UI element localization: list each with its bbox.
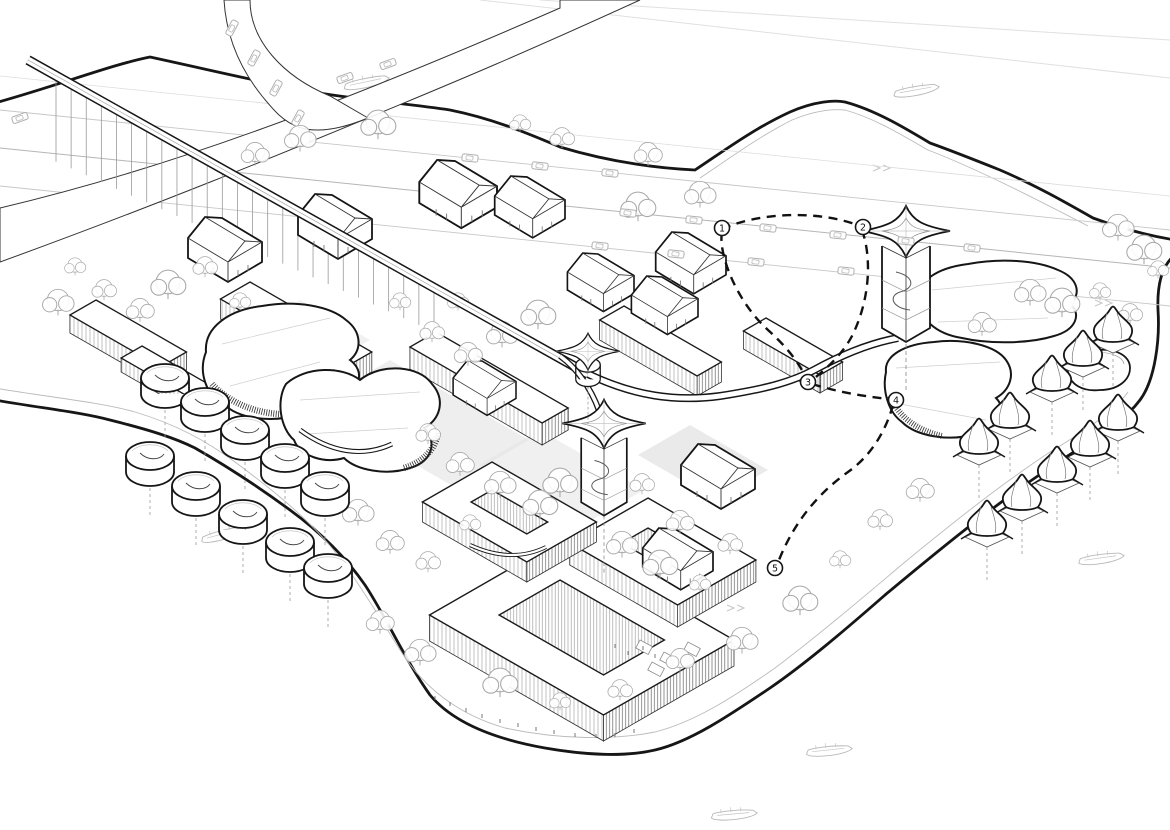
tree-icon — [65, 258, 86, 276]
tree-icon — [634, 142, 662, 165]
tree-icon — [1103, 214, 1135, 240]
tree-icon — [390, 293, 411, 311]
route-marker: 4 — [889, 393, 904, 408]
tree-icon — [630, 474, 655, 494]
tree-icon — [43, 289, 75, 315]
car-icon — [838, 267, 855, 276]
boat-icon — [1078, 548, 1125, 567]
car-icon — [11, 112, 28, 124]
route-marker-number: 4 — [893, 395, 899, 406]
tree-icon — [550, 128, 575, 148]
car-icon — [748, 258, 765, 267]
gabled-house — [567, 253, 634, 312]
boat-icon — [806, 741, 853, 758]
north-shoreline — [0, 57, 1170, 240]
boat-icon — [892, 79, 939, 99]
gabled-house — [495, 176, 565, 238]
car-icon — [532, 162, 549, 171]
drum-pavilion — [126, 442, 174, 518]
tree-icon — [405, 639, 437, 665]
water-current-icon — [727, 605, 744, 611]
drum-pavilion — [219, 500, 267, 576]
route-segment-1-2 — [722, 215, 860, 229]
route-marker: 2 — [856, 220, 871, 235]
tree-icon — [1127, 235, 1162, 264]
route-marker: 5 — [768, 561, 783, 576]
tree-icon — [906, 478, 934, 501]
car-icon — [379, 58, 396, 70]
tree-icon — [151, 270, 186, 299]
route-marker: 1 — [715, 221, 730, 236]
water-current-icon — [1095, 300, 1112, 306]
axonometric-masterplan-figure: 12345 — [0, 0, 1170, 830]
car-icon — [592, 242, 609, 251]
car-icon — [964, 244, 981, 253]
tree-icon — [783, 586, 818, 615]
tree-icon — [521, 300, 556, 329]
route-marker-number: 1 — [719, 223, 725, 234]
car-icon — [686, 216, 703, 225]
masterplan-drawing: 12345 — [0, 0, 1170, 830]
car-icon — [602, 169, 619, 178]
gabled-house — [419, 160, 497, 228]
tree-icon — [727, 627, 759, 653]
tree-icon — [830, 551, 851, 569]
route-segment-4-5 — [779, 405, 893, 560]
car-icon — [830, 231, 847, 240]
car-icon — [898, 237, 915, 246]
tree-icon — [416, 552, 441, 572]
gabled-house — [681, 444, 755, 509]
tree-icon — [126, 298, 154, 321]
car-icon — [668, 250, 685, 259]
route-marker: 3 — [801, 375, 816, 390]
car-icon — [620, 209, 637, 218]
route-marker-number: 3 — [805, 377, 811, 388]
route-marker-number: 2 — [860, 222, 866, 233]
boat-icon — [711, 805, 758, 822]
tree-icon — [685, 181, 717, 207]
route-marker-number: 5 — [772, 563, 778, 574]
interchange-branch-road — [224, 0, 368, 130]
dome-pavilion — [996, 475, 1048, 558]
car-icon — [462, 154, 479, 163]
tree-icon — [1090, 283, 1111, 301]
tree-icon — [376, 530, 404, 553]
car-icon — [760, 224, 777, 233]
drum-pavilion — [304, 554, 352, 630]
tree-icon — [868, 510, 893, 530]
tree-icon — [92, 280, 117, 300]
